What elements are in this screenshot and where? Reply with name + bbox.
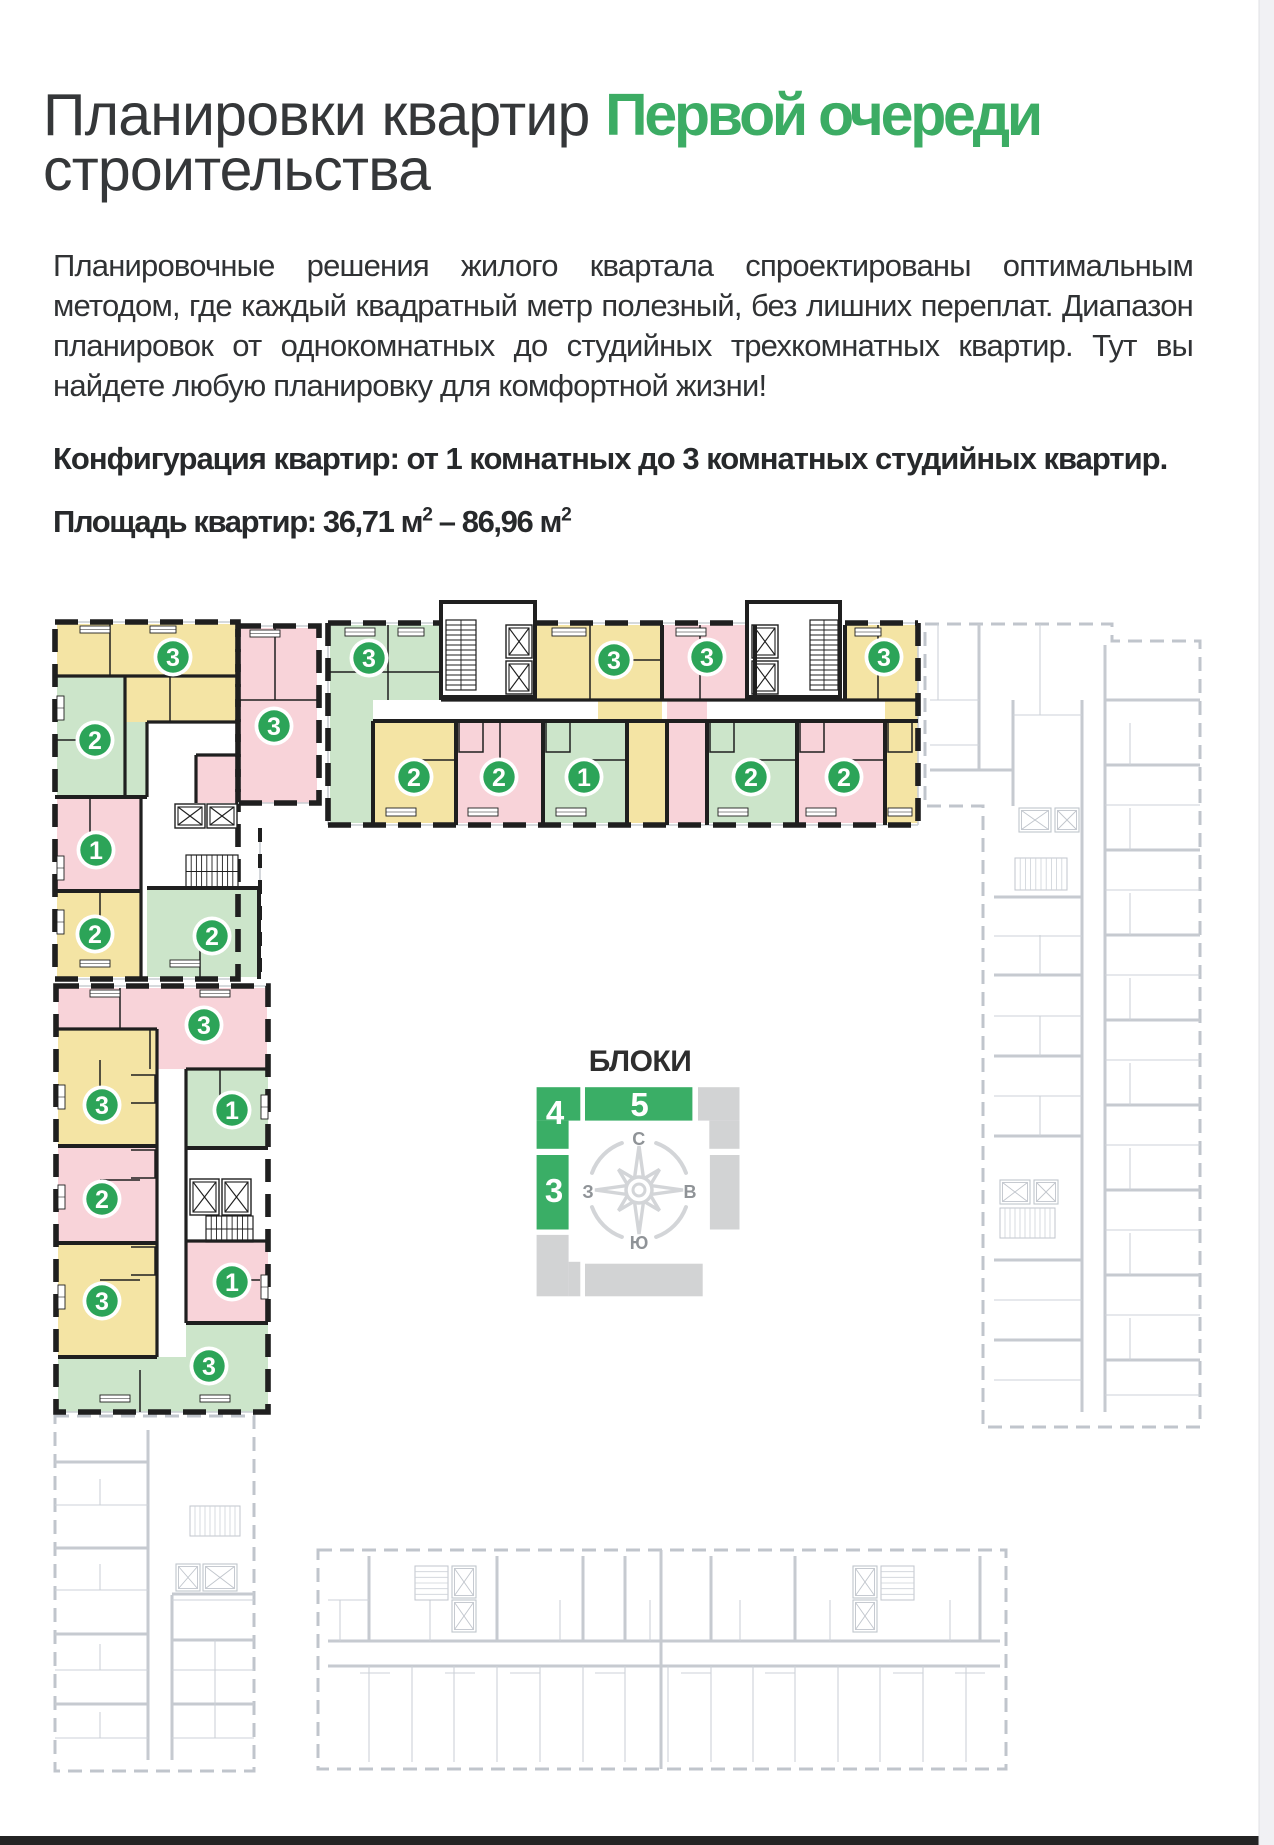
svg-text:3: 3	[877, 644, 891, 672]
svg-text:2: 2	[88, 727, 102, 755]
svg-text:3: 3	[362, 645, 376, 673]
svg-text:2: 2	[95, 1186, 109, 1214]
svg-text:4: 4	[546, 1094, 565, 1131]
svg-text:3: 3	[166, 644, 180, 672]
svg-text:2: 2	[205, 923, 219, 951]
svg-text:3: 3	[545, 1172, 563, 1209]
svg-text:2: 2	[744, 764, 758, 792]
svg-text:3: 3	[267, 713, 281, 741]
svg-text:3: 3	[95, 1092, 109, 1120]
svg-text:5: 5	[630, 1086, 648, 1123]
svg-text:Ю: Ю	[630, 1233, 649, 1253]
svg-text:3: 3	[197, 1012, 211, 1040]
svg-text:З: З	[582, 1182, 593, 1202]
svg-text:3: 3	[607, 647, 621, 675]
svg-text:1: 1	[225, 1097, 239, 1125]
svg-text:2: 2	[407, 764, 421, 792]
svg-text:БЛОКИ: БЛОКИ	[589, 1045, 692, 1078]
svg-text:2: 2	[837, 764, 851, 792]
svg-text:2: 2	[88, 921, 102, 949]
svg-text:В: В	[684, 1182, 697, 1202]
svg-text:3: 3	[202, 1353, 216, 1381]
svg-text:3: 3	[700, 644, 714, 672]
svg-text:1: 1	[577, 764, 591, 792]
svg-text:1: 1	[225, 1269, 239, 1297]
svg-text:3: 3	[95, 1288, 109, 1316]
svg-text:2: 2	[492, 764, 506, 792]
svg-text:1: 1	[89, 837, 103, 865]
svg-text:С: С	[632, 1129, 645, 1149]
